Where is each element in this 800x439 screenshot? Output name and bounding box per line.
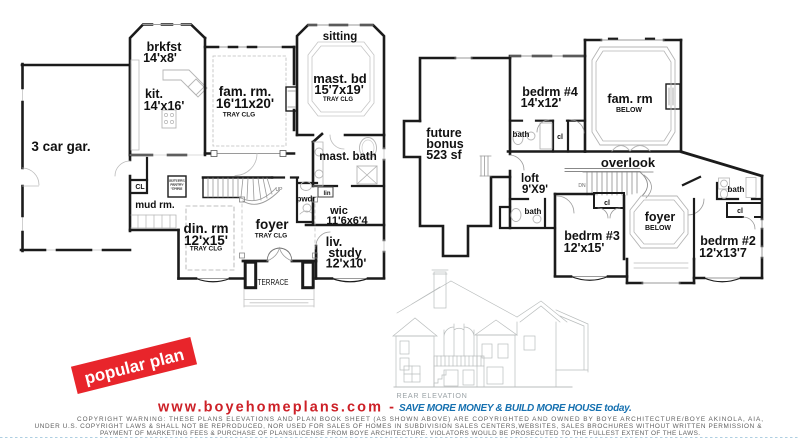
svg-text:UNDER U.S. COPYRIGHT LAWS & SH: UNDER U.S. COPYRIGHT LAWS & SHALL NOT BE… (35, 423, 763, 430)
svg-text:bath: bath (728, 185, 745, 194)
svg-text:523 sf: 523 sf (426, 148, 462, 162)
svg-text:lin: lin (324, 191, 331, 197)
svg-text:pwdr: pwdr (296, 195, 315, 204)
svg-text:foyer: foyer (255, 217, 289, 232)
svg-text:TRAY CLG: TRAY CLG (223, 112, 256, 119)
svg-text:15'7x19': 15'7x19' (314, 82, 364, 97)
svg-text:CL: CL (135, 184, 145, 191)
svg-text:cl: cl (604, 200, 610, 207)
svg-text:COPYRIGHT WARNING: THESE PLANS: COPYRIGHT WARNING: THESE PLANS ELEVATION… (77, 416, 763, 423)
svg-text:REAR ELEVATION: REAR ELEVATION (396, 391, 467, 400)
svg-text:overlook: overlook (601, 155, 656, 170)
svg-text:cl: cl (737, 208, 743, 215)
svg-text:foyer: foyer (645, 210, 676, 224)
svg-text:bath: bath (525, 207, 542, 216)
svg-text:16'11x20': 16'11x20' (216, 96, 274, 111)
svg-text:fam. rm: fam. rm (607, 92, 652, 106)
svg-text:14'x16': 14'x16' (144, 99, 185, 113)
svg-text:mast. bath: mast. bath (319, 151, 377, 163)
svg-text:9'X9': 9'X9' (522, 184, 548, 196)
svg-text:14'x8': 14'x8' (143, 51, 177, 65)
svg-text:TRAY CLG: TRAY CLG (255, 233, 288, 240)
svg-text:bath: bath (513, 130, 530, 139)
svg-text:11'6x6'4: 11'6x6'4 (326, 215, 368, 227)
svg-text:TRAY CLG: TRAY CLG (323, 97, 353, 103)
svg-text:14'x12': 14'x12' (521, 96, 562, 110)
svg-text:BELOW: BELOW (616, 107, 642, 114)
svg-text:DN: DN (578, 183, 586, 189)
svg-text:mud rm.: mud rm. (135, 200, 175, 211)
svg-text:CHINA: CHINA (172, 187, 183, 191)
svg-text:TERRACE: TERRACE (258, 277, 289, 287)
svg-text:BELOW: BELOW (645, 225, 671, 232)
svg-text:UP: UP (276, 187, 284, 193)
svg-text:12'x10': 12'x10' (326, 257, 367, 271)
svg-text:12'x13'7: 12'x13'7 (699, 246, 747, 260)
svg-text:sitting: sitting (323, 31, 358, 43)
svg-text:www.boyehomeplans.com -: www.boyehomeplans.com - (157, 400, 394, 416)
svg-text:SAVE MORE MONEY & BUILD MORE H: SAVE MORE MONEY & BUILD MORE HOUSE today… (399, 403, 632, 414)
svg-text:12'x15': 12'x15' (564, 241, 605, 255)
svg-text:3 car gar.: 3 car gar. (31, 139, 90, 154)
svg-text:TRAY CLG: TRAY CLG (190, 246, 223, 253)
svg-text:PAYMENT OF MARKETING FEES & PU: PAYMENT OF MARKETING FEES & PURCHASE OF … (100, 430, 700, 437)
svg-text:cl: cl (557, 134, 563, 141)
